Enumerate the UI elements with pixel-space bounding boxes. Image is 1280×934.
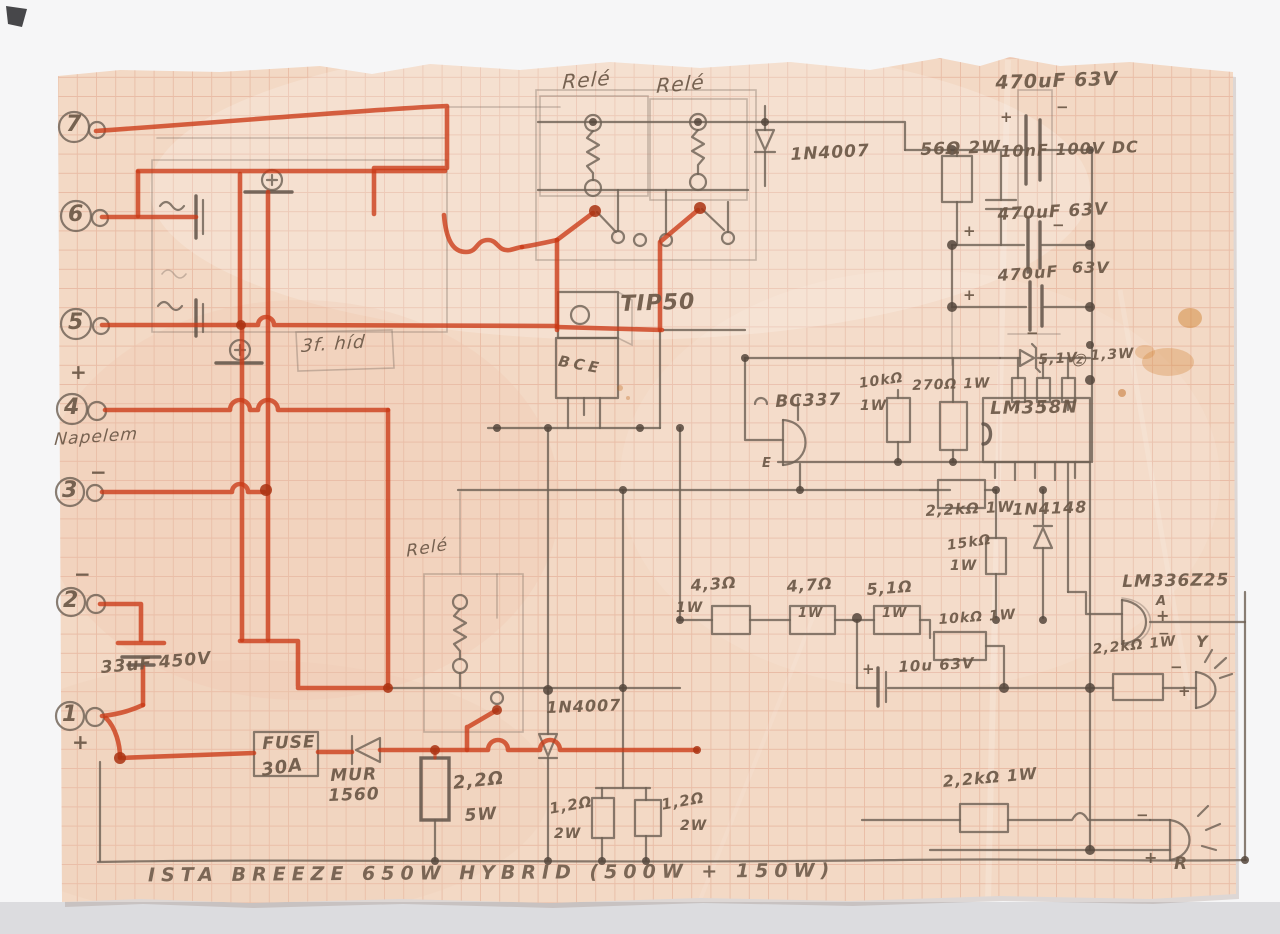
label-zener-minus: − — [1026, 324, 1040, 342]
label-d-mur: MUR — [330, 764, 377, 786]
label-terminal-4-plus: + — [70, 360, 88, 384]
label-d-1n4007-bottom: 1N4007 — [546, 695, 622, 717]
label-tip50: TIP50 — [620, 289, 696, 317]
label-bc337-e: E — [762, 456, 772, 471]
label-terminal-2-minus: − — [74, 562, 92, 586]
label-cap-470uf-3-plus: + — [963, 286, 977, 304]
label-relay-1: Relé — [562, 66, 612, 94]
label-led-red-minus: − — [1136, 806, 1150, 824]
label-r-56ohm: 56Ω 2W — [920, 137, 1001, 160]
label-cap-470uf-2-minus: − — [1052, 216, 1066, 234]
label-terminal-7: 7 — [66, 112, 82, 137]
label-cap-470uf-1: 470uF 63V — [995, 68, 1119, 94]
label-r-1r2-a-w: 2W — [554, 826, 581, 842]
label-terminal-4: 4 — [64, 395, 80, 420]
label-led-yellow-minus: − — [1170, 658, 1184, 676]
label-r-4r3-w: 1W — [676, 600, 703, 616]
label-r-5r1-w: 1W — [882, 606, 907, 621]
label-terminal-5: 5 — [68, 310, 84, 335]
label-cap-470uf-1-minus: − — [1056, 98, 1070, 116]
label-d-1n4148: 1N4148 — [1012, 497, 1088, 519]
label-terminal-1: 1 — [62, 702, 78, 727]
label-fuse: FUSE — [262, 732, 316, 754]
label-r-2r2-w: 5W — [464, 804, 498, 826]
scanned-schematic-page: 765+4Napelem−3−233uF 450V1+ReléRelé470uF… — [0, 0, 1280, 934]
label-led-yellow: Y — [1196, 632, 1209, 651]
label-cap-470uf-3-v: 63V — [1072, 258, 1110, 277]
label-led-yellow-plus: + — [1178, 682, 1192, 700]
label-terminal-3: 3 — [62, 478, 78, 503]
label-zener-z: Ⓩ — [1072, 350, 1086, 369]
label-lm336-plus: + — [1156, 606, 1170, 625]
label-diode-1n4007-top: 1N4007 — [790, 141, 870, 165]
label-r-4r3: 4,3Ω — [690, 573, 737, 595]
label-cap-10u-plus: + — [862, 660, 876, 678]
label-r-4r7: 4,7Ω — [786, 574, 833, 596]
label-r-5r1: 5,1Ω — [866, 577, 913, 599]
label-r-1r2-b-w: 2W — [680, 818, 707, 834]
label-lm336z25: LM336Z25 — [1122, 570, 1230, 592]
label-d-mur-2: 1560 — [328, 784, 380, 806]
label-zener-w: 1,3W — [1090, 346, 1135, 364]
label-r-4r7-w: 1W — [798, 606, 823, 621]
label-bc337: BC337 — [775, 390, 842, 412]
label-terminal-1-plus: + — [72, 730, 90, 754]
label-led-red: R — [1174, 854, 1188, 874]
label-r-10k-1-w: 1W — [860, 398, 887, 414]
label-terminal-2: 2 — [63, 588, 79, 613]
label-r-270: 270Ω 1W — [912, 375, 991, 394]
scanner-bottom-strip — [0, 902, 1280, 934]
label-terminal-6: 6 — [68, 202, 84, 227]
label-cap-470uf-2-plus: + — [963, 222, 977, 240]
label-r-15k-w: 1W — [950, 558, 977, 574]
label-terminal-3-minus: − — [90, 460, 108, 484]
label-ic-lm358: LM358N — [990, 396, 1078, 419]
label-led-red-plus: + — [1144, 848, 1158, 867]
label-relay-2: Relé — [656, 70, 706, 98]
label-cap-470uf-1-plus: + — [1000, 108, 1014, 126]
